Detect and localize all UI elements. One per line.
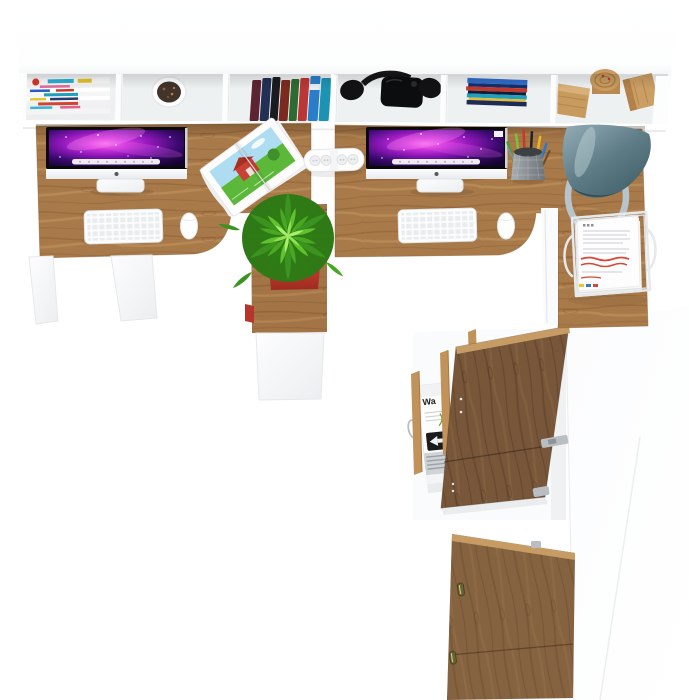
red-accent [245,304,254,323]
paper-stack [575,215,642,297]
keyboard-right [398,208,477,243]
keyboard-left [84,209,163,244]
imac-stand [417,179,463,192]
wall-shelf [12,0,677,131]
pedestal-body [256,333,324,400]
power-strip [304,148,365,178]
shredder-label: Wa [422,396,437,407]
scene-svg: Wa [0,0,689,700]
storage-cabinet: Wa [407,305,689,700]
cabinet-body [566,305,689,700]
apple-logo-icon [115,172,119,176]
mouse-left [181,213,198,239]
screen-window [494,131,503,137]
furniture-render: Wa [0,0,689,700]
shelf-top-panel [12,0,677,76]
door-knob [449,651,457,665]
cabinet-door-lower [447,534,575,700]
mouse-right [498,213,515,239]
door-knob [457,583,465,597]
apple-logo-icon [435,172,439,176]
imac-stand [97,179,144,192]
